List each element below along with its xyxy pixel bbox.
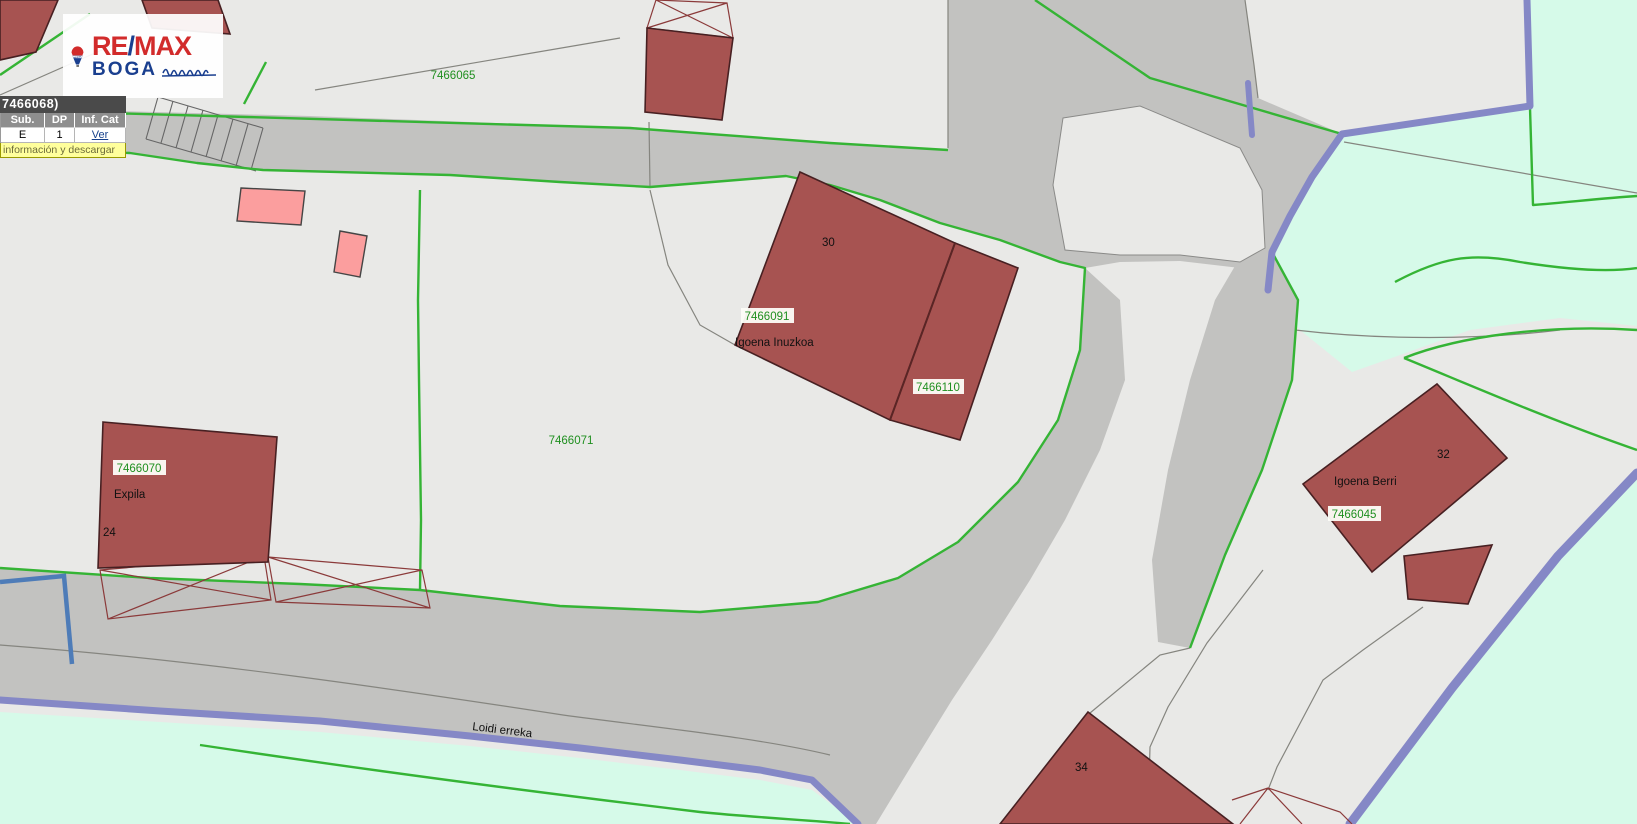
cadastral-map-viewer: 7466065 7466091 Igoena Inuzkoa 7466110 7… <box>0 0 1637 824</box>
parcel-label-7466045: 7466045 <box>1332 509 1377 521</box>
map-canvas[interactable]: 7466065 7466091 Igoena Inuzkoa 7466110 7… <box>0 0 1637 824</box>
house-number-30: 30 <box>822 237 835 249</box>
ver-link[interactable]: Ver <box>92 129 109 141</box>
logo-secondary-text: BOGA <box>92 60 157 79</box>
popup-download-link[interactable]: información y descargar <box>0 143 126 158</box>
popup-header-sub: Sub. <box>1 113 45 128</box>
parcel-info-popup: 7466068) Sub. DP Inf. Cat E 1 Ver inform… <box>0 96 126 158</box>
house-number-34: 34 <box>1075 762 1088 774</box>
parcel-label-7466070: 7466070 <box>117 463 162 475</box>
name-label-igoena-inuzkoa: Igoena Inuzkoa <box>735 337 814 349</box>
popup-header-infcat: Inf. Cat <box>75 113 126 128</box>
house-number-24: 24 <box>103 527 116 539</box>
remax-boga-logo: RE/MAX RE/MAX BOGA <box>63 14 223 98</box>
building-pink-1[interactable] <box>237 188 305 225</box>
parcel-label-7466091: 7466091 <box>745 311 790 323</box>
building-top-center[interactable] <box>645 28 733 120</box>
parcel-label-7466071: 7466071 <box>549 435 594 447</box>
popup-table: Sub. DP Inf. Cat E 1 Ver <box>0 113 126 143</box>
name-label-expila: Expila <box>114 489 146 501</box>
remax-balloon-icon: RE/MAX <box>69 25 86 87</box>
logo-primary-text: RE/MAX <box>92 33 217 60</box>
parcel-label-7466065: 7466065 <box>431 70 476 82</box>
popup-header-dp: DP <box>45 113 75 128</box>
name-label-igoena-berri: Igoena Berri <box>1334 476 1397 488</box>
parcel-label-7466110: 7466110 <box>916 382 960 394</box>
popup-title: 7466068) <box>0 96 126 113</box>
logo-signature-squiggle <box>161 65 217 77</box>
popup-value-dp: 1 <box>45 128 75 143</box>
house-number-32: 32 <box>1437 449 1450 461</box>
popup-value-sub: E <box>1 128 45 143</box>
